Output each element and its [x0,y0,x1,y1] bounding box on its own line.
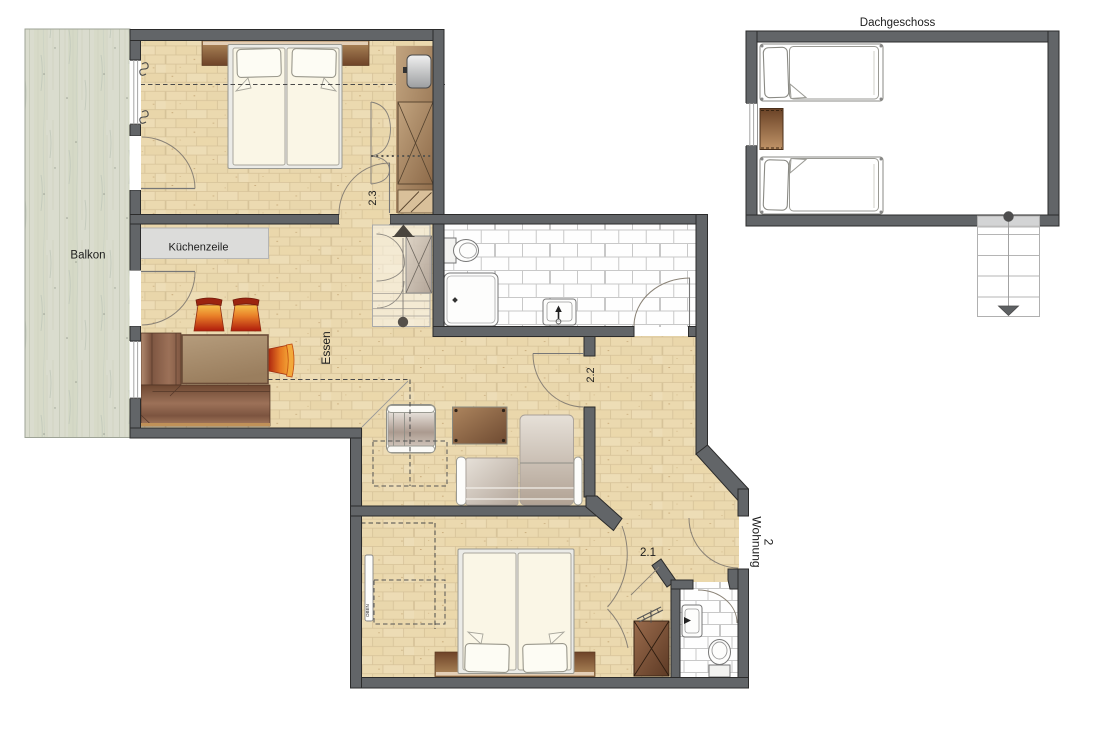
svg-text:Balkon: Balkon [70,250,105,262]
svg-text:2.1: 2.1 [640,547,656,559]
svg-text:Essen: Essen [319,331,333,364]
svg-text:Dachgeschoss: Dachgeschoss [860,17,936,29]
svg-text:2.2: 2.2 [585,367,597,382]
svg-text:2: 2 [762,539,776,546]
svg-text:OBEN: OBEN [365,604,370,617]
svg-text:Küchenzeile: Küchenzeile [169,242,229,254]
svg-text:2.3: 2.3 [367,190,379,205]
svg-text:Wohnung: Wohnung [750,516,764,567]
